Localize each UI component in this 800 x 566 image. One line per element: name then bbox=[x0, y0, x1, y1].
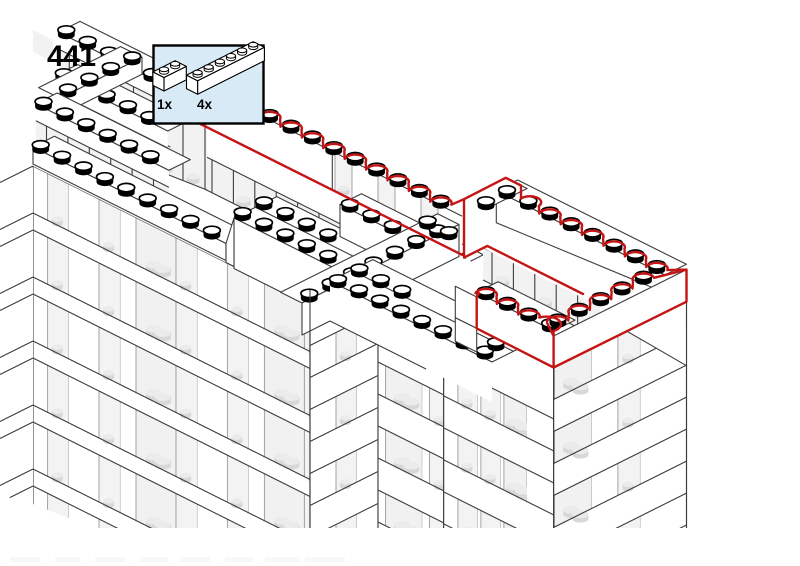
svg-text:1x: 1x bbox=[157, 97, 173, 112]
svg-text:4x: 4x bbox=[197, 97, 213, 112]
